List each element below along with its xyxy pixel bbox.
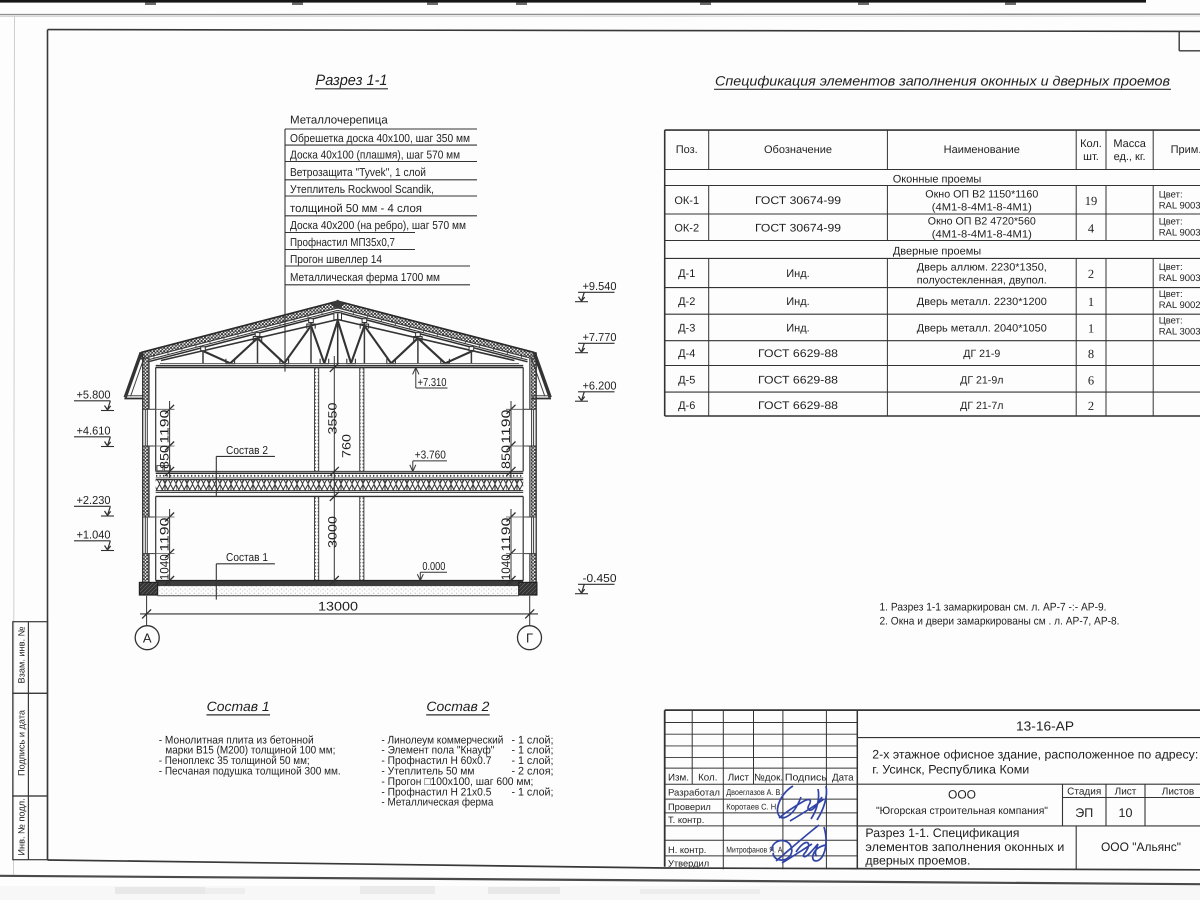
svg-text:(4М1-8-4М1-8-4М1): (4М1-8-4М1-8-4М1) bbox=[932, 229, 1032, 241]
svg-text:- Песчаная подушка толщиной 30: - Песчаная подушка толщиной 300 мм. bbox=[159, 766, 341, 778]
svg-text:+3.760: +3.760 bbox=[415, 450, 446, 462]
svg-text:3000: 3000 bbox=[326, 516, 340, 548]
svg-text:0.000: 0.000 bbox=[422, 561, 445, 573]
svg-text:Инд.: Инд. bbox=[786, 268, 809, 280]
svg-text:ООО "Альянс": ООО "Альянс" bbox=[1101, 840, 1181, 854]
svg-text:шт.: шт. bbox=[1083, 151, 1099, 163]
svg-text:Кол.: Кол. bbox=[1080, 138, 1102, 150]
svg-text:1040: 1040 bbox=[499, 554, 513, 580]
svg-text:ГОСТ 30674-99: ГОСТ 30674-99 bbox=[755, 195, 841, 207]
svg-text:+7.310: +7.310 bbox=[418, 377, 447, 389]
svg-text:13-16-АР: 13-16-АР bbox=[1016, 719, 1074, 734]
svg-text:ДГ 21-9: ДГ 21-9 bbox=[963, 348, 1000, 360]
svg-text:Состав 1: Состав 1 bbox=[207, 699, 270, 714]
svg-text:Утеплитель Rockwool Scandik,: Утеплитель Rockwool Scandik, bbox=[290, 184, 434, 196]
svg-text:Дата: Дата bbox=[832, 773, 854, 784]
svg-text:Стадия: Стадия bbox=[1067, 787, 1101, 798]
svg-text:ДГ 21-7л: ДГ 21-7л bbox=[960, 400, 1003, 412]
svg-text:Утвердил: Утвердил bbox=[668, 858, 709, 868]
svg-text:Оконные проемы: Оконные проемы bbox=[893, 173, 982, 185]
svg-text:Разработал: Разработал bbox=[668, 788, 720, 798]
svg-text:- 1 слой;: - 1 слой; bbox=[512, 786, 554, 798]
svg-text:13000: 13000 bbox=[318, 599, 358, 613]
svg-text:Окно ОП В2 4720*560: Окно ОП В2 4720*560 bbox=[928, 216, 1036, 228]
svg-text:ГОСТ 6629-88: ГОСТ 6629-88 bbox=[758, 400, 838, 412]
svg-text:Профнастил МП35х0,7: Профнастил МП35х0,7 bbox=[290, 237, 395, 249]
svg-text:2: 2 bbox=[1088, 399, 1094, 413]
svg-text:- Металлическая ферма: - Металлическая ферма bbox=[381, 797, 494, 809]
svg-text:Д-1: Д-1 bbox=[678, 268, 695, 280]
svg-text:Металлическая ферма 1700 мм: Металлическая ферма 1700 мм bbox=[290, 272, 440, 284]
svg-text:4: 4 bbox=[1088, 222, 1095, 236]
svg-text:Состав 1: Состав 1 bbox=[226, 552, 268, 564]
svg-text:элементов заполнения оконных и: элементов заполнения оконных и bbox=[865, 840, 1064, 854]
svg-text:Дверь металл. 2230*1200: Дверь металл. 2230*1200 bbox=[917, 296, 1047, 308]
svg-text:г. Усинск, Республика Коми: г. Усинск, Республика Коми bbox=[872, 763, 1029, 777]
svg-text:Подпись и дата: Подпись и дата bbox=[17, 709, 27, 776]
svg-text:RAL 9002: RAL 9002 bbox=[1159, 300, 1200, 311]
svg-text:Взам. инв. №: Взам. инв. № bbox=[17, 626, 27, 683]
svg-text:ООО: ООО bbox=[948, 788, 976, 802]
svg-text:8: 8 bbox=[1088, 347, 1094, 361]
svg-text:Дверные проемы: Дверные проемы bbox=[893, 246, 981, 258]
svg-text:Окно ОП В2 1150*1160: Окно ОП В2 1150*1160 bbox=[925, 189, 1038, 201]
svg-text:Дверь металл. 2040*1050: Дверь металл. 2040*1050 bbox=[917, 322, 1047, 334]
svg-text:Инв. № подл.: Инв. № подл. bbox=[17, 798, 27, 855]
svg-text:2-х этажное офисное здание, ра: 2-х этажное офисное здание, расположенно… bbox=[872, 747, 1198, 761]
svg-text:Разрез 1-1: Разрез 1-1 bbox=[316, 72, 388, 89]
svg-text:RAL 3003: RAL 3003 bbox=[1159, 327, 1200, 338]
svg-text:Д-2: Д-2 bbox=[678, 296, 695, 308]
svg-text:Коротаев С. Н.: Коротаев С. Н. bbox=[726, 801, 778, 811]
svg-text:Лист: Лист bbox=[728, 773, 750, 784]
svg-text:Состав 2: Состав 2 bbox=[226, 445, 268, 457]
svg-text:Доска 40х100 (плашмя), шаг 570: Доска 40х100 (плашмя), шаг 570 мм bbox=[290, 149, 460, 161]
svg-text:ГОСТ 6629-88: ГОСТ 6629-88 bbox=[758, 348, 838, 360]
svg-text:Изм.: Изм. bbox=[668, 773, 689, 784]
svg-text:1: 1 bbox=[1088, 295, 1094, 309]
svg-text:RAL 9003: RAL 9003 bbox=[1159, 273, 1200, 284]
svg-text:+5.800: +5.800 bbox=[77, 389, 111, 401]
svg-text:+9.540: +9.540 bbox=[583, 281, 617, 293]
svg-text:ОК-1: ОК-1 bbox=[674, 195, 699, 207]
svg-text:1190: 1190 bbox=[157, 409, 171, 443]
svg-text:Состав 2: Состав 2 bbox=[426, 699, 490, 714]
svg-text:1040: 1040 bbox=[157, 554, 171, 580]
svg-text:ДГ 21-9л: ДГ 21-9л bbox=[960, 374, 1003, 386]
svg-text:Дверь аллюм. 2230*1350,: Дверь аллюм. 2230*1350, bbox=[917, 261, 1047, 273]
svg-text:10: 10 bbox=[1119, 806, 1133, 820]
svg-text:Д-5: Д-5 bbox=[678, 374, 695, 386]
svg-text:Д-6: Д-6 bbox=[678, 400, 695, 412]
svg-text:Листов: Листов bbox=[1162, 787, 1195, 798]
svg-text:19: 19 bbox=[1085, 194, 1098, 208]
svg-text:Подпись: Подпись bbox=[785, 773, 827, 784]
svg-text:2. Окна и двери замаркированы: 2. Окна и двери замаркированы см . л. АР… bbox=[880, 616, 1120, 628]
svg-text:2: 2 bbox=[1088, 267, 1094, 281]
svg-text:1190: 1190 bbox=[499, 409, 513, 443]
svg-text:Д-4: Д-4 bbox=[678, 348, 695, 360]
svg-text:Ветрозащита "Tyvek", 1 слой: Ветрозащита "Tyvek", 1 слой bbox=[290, 167, 426, 179]
svg-text:Разрез 1-1. Спецификация: Разрез 1-1. Спецификация bbox=[865, 826, 1019, 840]
svg-text:RAL 9003: RAL 9003 bbox=[1159, 228, 1200, 239]
svg-text:Прогон швеллер 14: Прогон швеллер 14 bbox=[290, 254, 383, 266]
svg-text:850: 850 bbox=[499, 445, 513, 469]
svg-text:полуостекленная, двупол.: полуостекленная, двупол. bbox=[917, 274, 1047, 286]
svg-text:Цвет:: Цвет: bbox=[1159, 316, 1183, 327]
svg-text:Масса: Масса bbox=[1113, 138, 1146, 150]
svg-text:Спецификация элементов заполне: Спецификация элементов заполнения оконны… bbox=[715, 74, 1170, 89]
svg-text:(4М1-8-4М1-8-4М1): (4М1-8-4М1-8-4М1) bbox=[932, 202, 1032, 214]
svg-text:1190: 1190 bbox=[157, 517, 171, 551]
svg-text:Кол.: Кол. bbox=[698, 773, 717, 784]
svg-text:толщиной 50 мм - 4 слоя: толщиной 50 мм - 4 слоя bbox=[290, 203, 422, 215]
svg-text:Цвет:: Цвет: bbox=[1159, 217, 1183, 228]
svg-text:Наименование: Наименование bbox=[944, 144, 1020, 156]
svg-text:ОК-2: ОК-2 bbox=[674, 222, 699, 234]
svg-text:Лист: Лист bbox=[1115, 787, 1137, 798]
svg-text:Митрофанов Я. А.: Митрофанов Я. А. bbox=[726, 845, 784, 855]
svg-text:Д-3: Д-3 bbox=[678, 322, 695, 334]
svg-text:+7.770: +7.770 bbox=[583, 332, 617, 344]
svg-text:Проверил: Проверил bbox=[668, 802, 711, 812]
svg-text:Обозначение: Обозначение bbox=[764, 144, 832, 156]
svg-text:Цвет:: Цвет: bbox=[1159, 190, 1183, 201]
svg-text:ГОСТ 30674-99: ГОСТ 30674-99 bbox=[755, 222, 841, 234]
svg-text:3550: 3550 bbox=[326, 402, 340, 434]
svg-text:Поз.: Поз. bbox=[676, 144, 698, 156]
svg-text:Инд.: Инд. bbox=[786, 322, 809, 334]
svg-text:Обрешетка доска 40х100, шаг 35: Обрешетка доска 40х100, шаг 350 мм bbox=[290, 133, 470, 145]
svg-text:1190: 1190 bbox=[499, 517, 513, 551]
svg-text:Двоеглазов А. В.: Двоеглазов А. В. bbox=[726, 787, 782, 797]
svg-text:+1.040: +1.040 bbox=[77, 529, 111, 541]
svg-text:Прим.: Прим. bbox=[1171, 144, 1200, 156]
svg-text:Н. контр.: Н. контр. bbox=[668, 845, 706, 855]
svg-text:№док.: №док. bbox=[754, 773, 783, 784]
svg-text:850: 850 bbox=[157, 445, 171, 469]
svg-text:ГОСТ 6629-88: ГОСТ 6629-88 bbox=[758, 374, 838, 386]
svg-text:-0.450: -0.450 bbox=[583, 573, 617, 585]
svg-text:"Югорская строительная компани: "Югорская строительная компания" bbox=[876, 805, 1048, 817]
svg-text:Металлочерепица: Металлочерепица bbox=[290, 115, 388, 127]
svg-text:RAL 9003: RAL 9003 bbox=[1159, 201, 1200, 212]
svg-text:1. Разрез 1-1 замаркирован см.: 1. Разрез 1-1 замаркирован см. л. АР-7 -… bbox=[880, 602, 1107, 614]
svg-text:Инд.: Инд. bbox=[786, 296, 809, 308]
svg-text:Т. контр.: Т. контр. bbox=[668, 815, 704, 825]
svg-text:ЭП: ЭП bbox=[1075, 806, 1093, 820]
svg-text:ед., кг.: ед., кг. bbox=[1114, 151, 1146, 163]
svg-text:1: 1 bbox=[1088, 322, 1094, 336]
svg-text:+4.610: +4.610 bbox=[77, 425, 111, 437]
svg-text:Г: Г bbox=[526, 630, 533, 645]
svg-text:Доска 40х200 (на ребро), шаг 5: Доска 40х200 (на ребро), шаг 570 мм bbox=[290, 220, 466, 232]
svg-text:дверных проемов.: дверных проемов. bbox=[865, 853, 970, 867]
svg-text:+6.200: +6.200 bbox=[583, 380, 617, 392]
svg-text:Цвет:: Цвет: bbox=[1159, 289, 1183, 300]
svg-text:760: 760 bbox=[340, 434, 354, 458]
svg-text:А: А bbox=[143, 630, 152, 645]
svg-text:Цвет:: Цвет: bbox=[1159, 262, 1183, 273]
svg-text:6: 6 bbox=[1088, 373, 1094, 387]
svg-text:+2.230: +2.230 bbox=[77, 495, 111, 507]
